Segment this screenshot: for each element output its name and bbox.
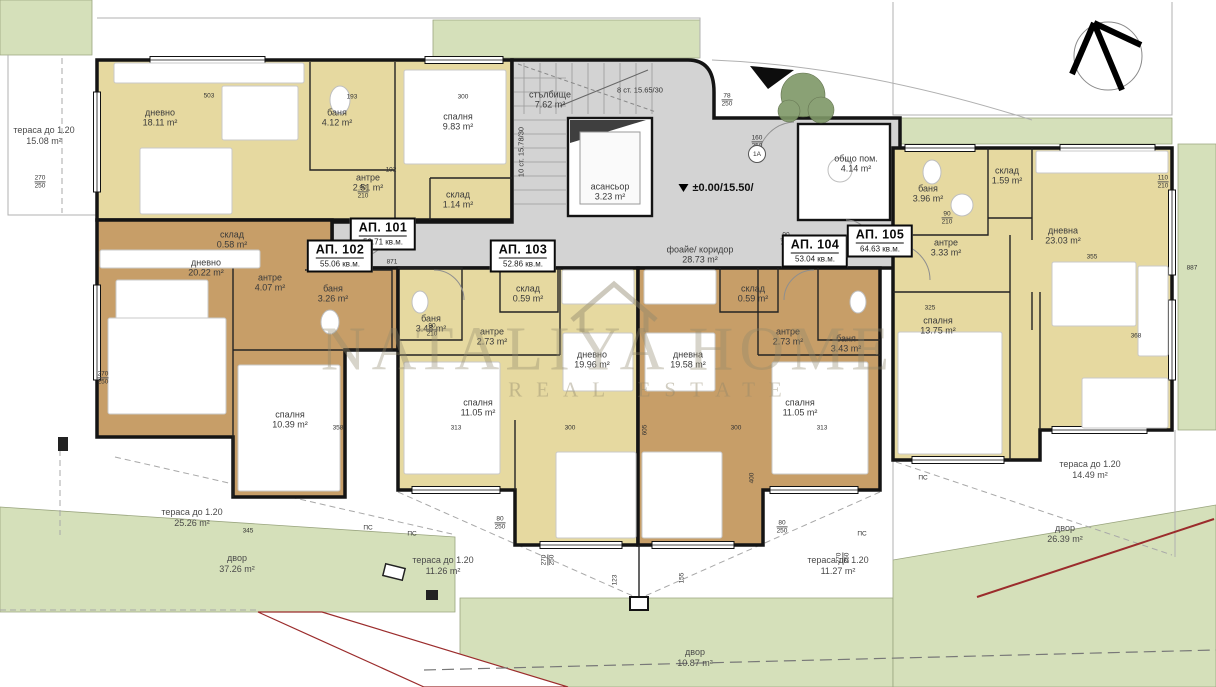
site-area-label: двор10.87 m² xyxy=(677,647,713,669)
dimension-label: ПС xyxy=(857,530,866,537)
labels-layer: АП. 10152.71 кв.м.АП. 10255.06 кв.м.АП. … xyxy=(0,0,1216,687)
room-label: спалня11.05 m² xyxy=(783,398,818,419)
room-label: антре3.33 m² xyxy=(931,238,962,259)
apartment-label: АП. 10352.86 кв.м. xyxy=(490,240,556,273)
dimension-label: 400 xyxy=(748,473,755,484)
room-label: асансьор3.23 m² xyxy=(591,182,630,203)
site-area-label: тераса до 1.2015.08 m² xyxy=(13,125,74,147)
dimension-label: 90210 xyxy=(358,184,369,199)
room-label: дневно18.11 m² xyxy=(143,108,178,129)
room-label: склад0.59 m² xyxy=(738,284,769,305)
dimension-label: 270250 xyxy=(35,174,46,189)
site-area-label: тераса до 1.2025.26 m² xyxy=(161,507,222,529)
room-label: баня4.12 m² xyxy=(322,108,353,129)
room-label: склад0.59 m² xyxy=(513,284,544,305)
dimension-label: 325 xyxy=(925,304,936,311)
room-label: дневно20.22 m² xyxy=(188,258,224,279)
dimension-label: 110210 xyxy=(1158,174,1169,189)
dimension-label: 193 xyxy=(347,93,358,100)
dimension-label: 270250 xyxy=(540,555,555,566)
dimension-label: 503 xyxy=(204,92,215,99)
dimension-label: 300 xyxy=(458,93,469,100)
room-label: спалня13.75 m² xyxy=(920,316,956,337)
apartment-label: АП. 10255.06 кв.м. xyxy=(307,240,373,273)
dimension-label: 80250 xyxy=(495,515,506,530)
room-label: дневно19.96 m² xyxy=(574,350,610,371)
room-label: склад1.14 m² xyxy=(443,190,474,211)
dimension-label: 300 xyxy=(565,424,576,431)
dimension-label: 368 xyxy=(1131,332,1142,339)
site-area-label: двор37.26 m² xyxy=(219,553,255,575)
dimension-label: 270250 xyxy=(835,553,850,564)
level-mark-value: ±0.00/15.50/ xyxy=(692,182,753,194)
site-area-label: тераса до 1.2014.49 m² xyxy=(1059,459,1120,481)
site-area-label: тераса до 1.2011.26 m² xyxy=(412,555,473,577)
room-label: баня3.43 m² xyxy=(831,334,862,355)
dimension-label: 123 xyxy=(611,575,618,586)
dimension-label: ПС xyxy=(363,524,372,531)
room-label: общо пом.4.14 m² xyxy=(834,154,878,175)
dimension-label: 358 xyxy=(333,424,344,431)
dimension-label: 345 xyxy=(243,527,254,534)
dimension-label: ПС xyxy=(918,474,927,481)
dimension-label: 887 xyxy=(1187,264,1198,271)
dimension-label: ПС xyxy=(407,530,416,537)
room-label: стълбище7.62 m² xyxy=(529,90,571,111)
dimension-label: 90210 xyxy=(427,322,438,337)
room-label: дневна23.03 m² xyxy=(1045,226,1081,247)
room-label: склад1.59 m² xyxy=(992,166,1023,187)
node-label: 1А xyxy=(748,145,766,163)
room-label: антре2.73 m² xyxy=(773,327,804,348)
apartment-label: АП. 10453.04 кв.м. xyxy=(782,235,848,268)
dimension-label: 192 xyxy=(386,166,397,173)
apartment-label: АП. 10564.63 кв.м. xyxy=(847,225,913,258)
level-mark-icon xyxy=(678,184,688,192)
level-mark: ±0.00/15.50/ xyxy=(678,182,753,194)
room-label: спалня11.05 m² xyxy=(461,398,496,419)
dimension-label: 313 xyxy=(451,424,462,431)
dimension-label: 605 xyxy=(641,425,648,436)
room-label: дневна19.58 m² xyxy=(670,350,706,371)
room-label: спалня9.83 m² xyxy=(443,112,474,133)
site-area-label: двор26.39 m² xyxy=(1047,523,1083,545)
stairs-note: 10 ст. 15.78/30 xyxy=(517,127,526,177)
dimension-label: 90210 xyxy=(942,210,953,225)
dimension-label: 300 xyxy=(731,424,742,431)
room-label: спалня10.39 m² xyxy=(272,410,308,431)
room-label: баня3.96 m² xyxy=(913,184,944,205)
dimension-label: 80250 xyxy=(777,519,788,534)
dimension-label: 78250 xyxy=(722,92,733,107)
stairs-note: 8 ст. 15.65/30 xyxy=(617,86,663,95)
room-label: антре2.73 m² xyxy=(477,327,508,348)
dimension-label: 155 xyxy=(678,573,685,584)
dimension-label: 270250 xyxy=(98,370,109,385)
dimension-label: 313 xyxy=(817,424,828,431)
floor-plan-canvas: NATALIYA HOME REAL ESTATE ±0.00/15.50/ 1… xyxy=(0,0,1216,687)
room-label: антре4.07 m² xyxy=(255,273,286,294)
room-label: склад0.58 m² xyxy=(217,230,248,251)
dimension-label: 871 xyxy=(387,258,398,265)
room-label: фоайе/ коридор28.73 m² xyxy=(667,245,734,266)
room-label: баня3.26 m² xyxy=(318,284,349,305)
dimension-label: 355 xyxy=(1087,253,1098,260)
